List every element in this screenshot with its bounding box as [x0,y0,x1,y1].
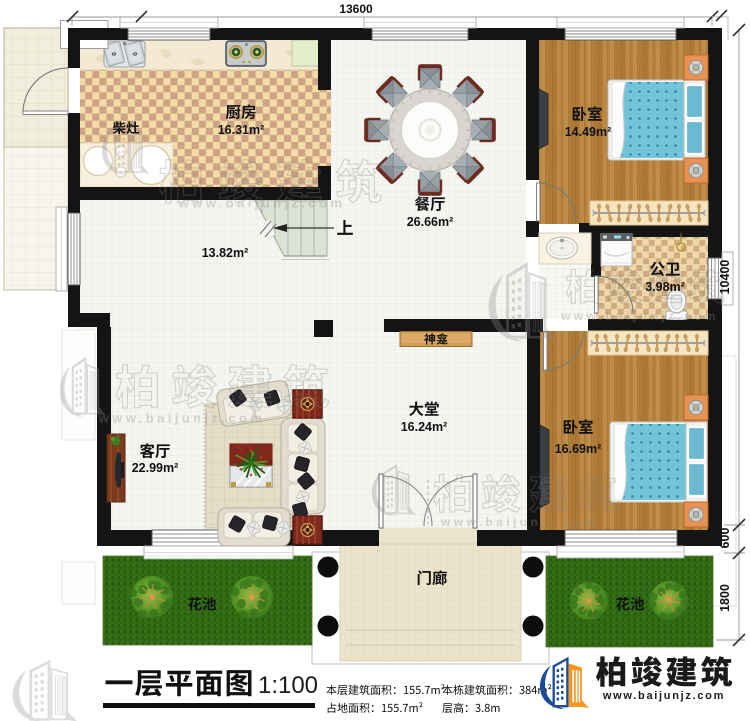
svg-text:www.baijunjz.com: www.baijunjz.com [98,411,266,426]
svg-text:www.baijunjz.com: www.baijunjz.com [602,690,725,702]
svg-text:www.baijunjz.com: www.baijunjz.com [560,309,719,323]
svg-text:16.69m²: 16.69m² [555,442,602,456]
svg-text:16.31m²: 16.31m² [218,123,265,137]
svg-text:16.24m²: 16.24m² [401,420,448,434]
svg-text:22.99m²: 22.99m² [132,461,179,475]
svg-text:26.66m²: 26.66m² [407,215,454,229]
svg-text:14.49m²: 14.49m² [565,125,612,139]
svg-text:600: 600 [718,528,732,549]
svg-text:1800: 1800 [718,584,732,612]
svg-text:10400: 10400 [718,260,732,295]
svg-text:1:100: 1:100 [258,672,318,699]
svg-text:www.baijunjz.com: www.baijunjz.com [178,196,346,211]
svg-text:3.98m²: 3.98m² [645,280,685,294]
svg-text:13.82m²: 13.82m² [202,246,249,260]
svg-text:13600: 13600 [339,2,373,16]
svg-text:www.baijunjz.com: www.baijunjz.com [440,515,599,529]
